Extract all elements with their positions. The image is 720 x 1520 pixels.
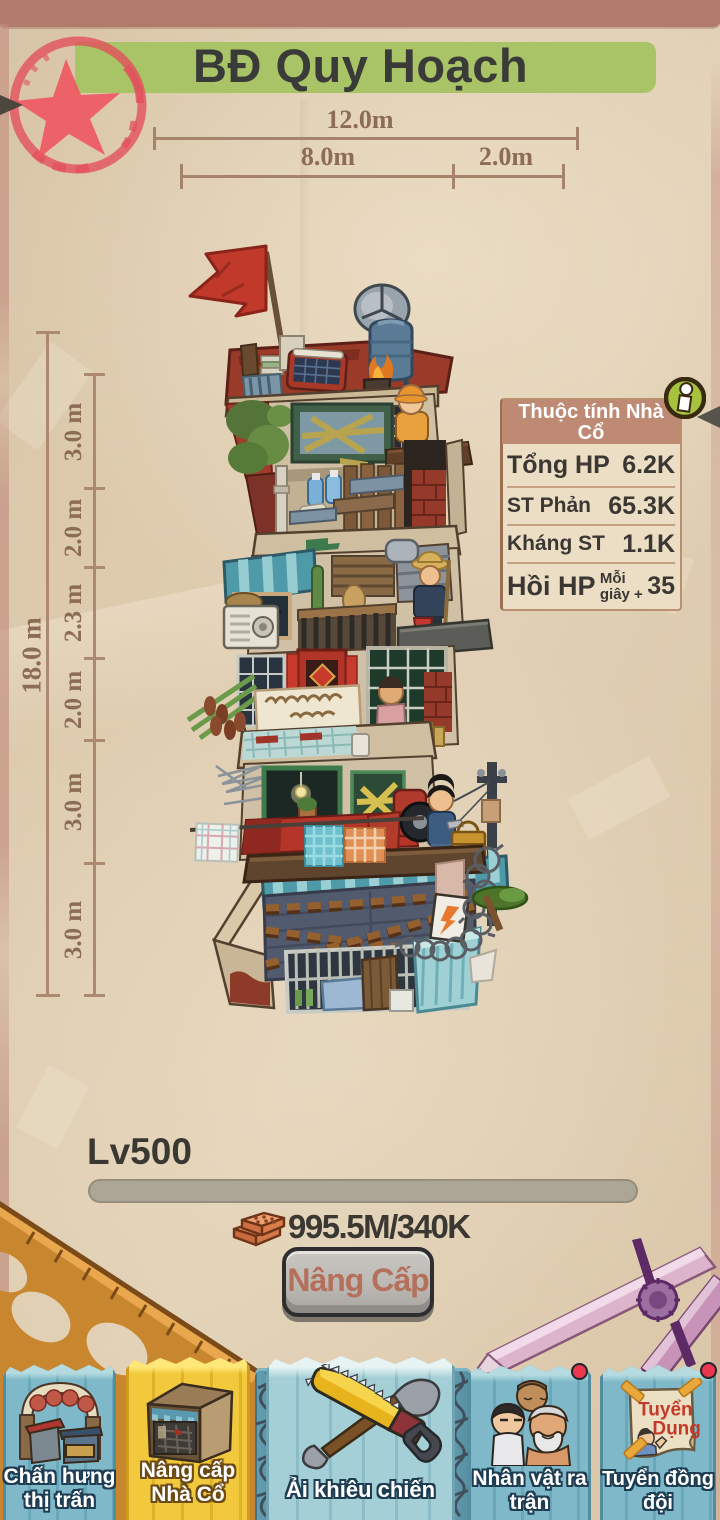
- svg-text:Tuyển: Tuyển: [638, 1399, 693, 1420]
- svg-text:Dụng: Dụng: [652, 1418, 701, 1439]
